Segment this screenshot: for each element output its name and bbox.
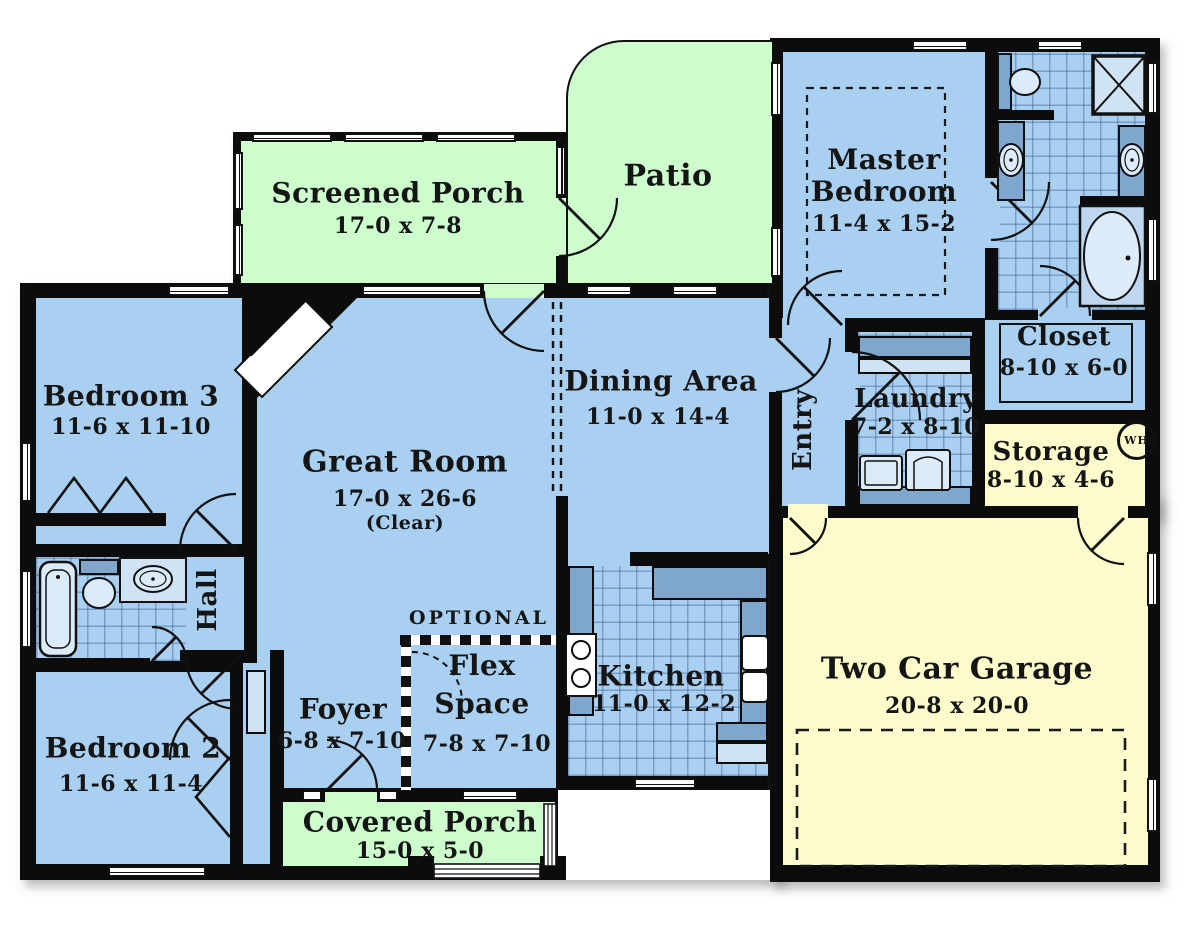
exterior-gap (558, 790, 770, 880)
laundry-cabinet (858, 336, 972, 358)
label-storage: Storage (993, 437, 1110, 467)
label-two-car-garage-dims: 20-8 x 20-0 (885, 693, 1029, 719)
kitchen-counter-top (652, 566, 768, 600)
wall (230, 837, 243, 864)
label-flex-optional: OPTIONAL (409, 607, 549, 629)
label-great-room-note: (Clear) (366, 512, 444, 534)
label-laundry-dims: 7-2 x 8-10 (852, 414, 980, 440)
window (1147, 218, 1158, 282)
window (436, 133, 516, 142)
window (462, 790, 518, 801)
room-master-bath (998, 52, 1145, 310)
label-bedroom-3-dims: 11-6 x 11-10 (51, 414, 211, 440)
opening-storage-garage (1078, 504, 1128, 518)
label-entry: Entry (788, 389, 818, 471)
floor-plan: Screened Porch 17-0 x 7-8 Patio Master B… (0, 0, 1200, 928)
label-kitchen: Kitchen (598, 660, 725, 693)
label-covered-porch-dims: 15-0 x 5-0 (356, 838, 484, 864)
window (344, 133, 424, 142)
window (586, 285, 632, 296)
wall (20, 544, 180, 557)
opening-greatroom-patio-door (484, 284, 544, 298)
wall (36, 513, 166, 526)
water-heater-badge: WH (1117, 421, 1156, 460)
window (168, 285, 230, 296)
label-closet-dims: 8-10 x 6-0 (1000, 355, 1128, 381)
wall (230, 663, 243, 757)
opening-front-door (325, 792, 377, 802)
window (21, 570, 32, 648)
label-dining-area-dims: 11-0 x 14-4 (586, 404, 730, 430)
label-master-bedroom-dims: 11-4 x 15-2 (812, 211, 956, 237)
wall (270, 650, 284, 790)
label-hall: Hall (193, 568, 223, 631)
label-screened-porch: Screened Porch (271, 177, 524, 210)
window (108, 866, 206, 877)
label-flex-space-dims: 7-8 x 7-10 (423, 731, 551, 757)
wall (556, 496, 568, 790)
label-flex-space: Flex Space (422, 647, 542, 723)
opening-closet-door (1038, 308, 1092, 322)
laundry-counter (858, 486, 972, 506)
opening-dining-entry (767, 338, 784, 392)
opening-dining-kitchen (568, 552, 630, 566)
window (556, 146, 566, 196)
wall (630, 552, 768, 566)
kitchen-counter-right (740, 600, 768, 736)
room-hall-bath (36, 557, 186, 661)
label-two-car-garage: Two Car Garage (821, 652, 1093, 687)
label-great-room-dims: 17-0 x 26-6 (333, 486, 477, 512)
door-jamb (378, 790, 398, 801)
window (252, 133, 332, 142)
label-great-room: Great Room (302, 445, 508, 480)
label-screened-porch-dims: 17-0 x 7-8 (334, 213, 462, 239)
window (1037, 40, 1083, 51)
window (771, 62, 782, 116)
label-patio: Patio (624, 159, 713, 194)
kitchen-pantry-shelf (716, 742, 768, 764)
window (1147, 552, 1158, 606)
window (672, 285, 718, 296)
window (362, 285, 482, 296)
label-dining-area: Dining Area (564, 365, 758, 398)
opening-masterbath-door (983, 178, 1000, 248)
window (234, 152, 243, 210)
label-closet: Closet (1017, 322, 1111, 352)
label-bedroom-2-dims: 11-6 x 11-4 (59, 771, 203, 797)
window (234, 224, 243, 276)
label-foyer: Foyer (299, 693, 387, 726)
room-bedroom-2 (36, 672, 230, 864)
window (1147, 62, 1158, 114)
opening-master-door (788, 316, 842, 334)
wall (180, 650, 188, 663)
room-two-car-garage (783, 518, 1148, 865)
opening-porch-patio-door (556, 198, 566, 256)
porch-column (540, 856, 566, 880)
label-bedroom-3: Bedroom 3 (43, 380, 220, 413)
window (912, 40, 968, 51)
label-foyer-dims: 6-8 x 7-10 (278, 728, 406, 754)
laundry-shelf (858, 358, 972, 374)
label-bedroom-2: Bedroom 2 (45, 732, 222, 765)
wall (244, 640, 257, 652)
kitchen-counter-corner (716, 722, 768, 742)
window (634, 778, 696, 789)
kitchen-counter-left (568, 566, 594, 716)
room-screened-porch (241, 141, 556, 283)
wall (20, 658, 150, 672)
label-master-bedroom: Master Bedroom (794, 144, 974, 208)
label-laundry: Laundry (854, 384, 977, 414)
label-storage-dims: 8-10 x 4-6 (987, 467, 1115, 493)
window (771, 227, 782, 277)
hall-closet-shelf (246, 670, 266, 734)
window (21, 442, 32, 502)
door-jamb (302, 790, 322, 801)
wall (244, 283, 257, 566)
window (1147, 778, 1158, 832)
wall (236, 650, 244, 663)
label-covered-porch: Covered Porch (303, 806, 538, 839)
label-kitchen-dims: 11-0 x 12-2 (592, 691, 736, 717)
wall (236, 544, 257, 557)
opening-entry-garage (788, 504, 828, 518)
